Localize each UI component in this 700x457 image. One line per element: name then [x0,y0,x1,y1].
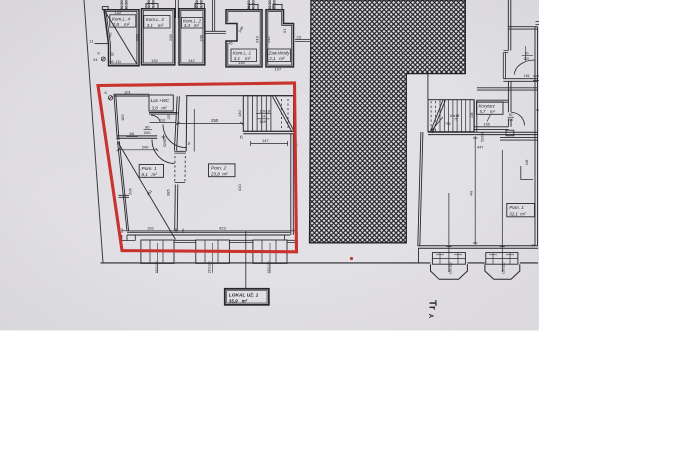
svg-text:90: 90 [509,113,513,117]
svg-text:80/200: 80/200 [195,0,199,9]
svg-text:182: 182 [120,114,125,121]
svg-text:2,8 m²: 2,8 m² [112,22,130,27]
svg-text:243: 243 [255,36,260,43]
svg-text:80/200: 80/200 [252,0,256,9]
svg-text:23,8 m²: 23,8 m² [210,172,228,177]
svg-text:750: 750 [445,122,451,126]
svg-text:238: 238 [168,34,173,41]
svg-text:Kom.L. 4: Kom.L. 4 [112,16,131,21]
svg-text:68: 68 [130,131,135,136]
svg-text:80/200: 80/200 [147,0,151,9]
svg-text:385: 385 [166,189,171,196]
svg-text:Pom. 2: Pom. 2 [211,165,227,171]
svg-text:147: 147 [262,138,269,143]
svg-text:80/200: 80/200 [120,0,124,9]
svg-text:5,7 m²: 5,7 m² [480,109,496,114]
svg-text:200: 200 [144,130,151,135]
svg-text:45: 45 [229,42,233,46]
svg-text:65: 65 [110,60,114,64]
svg-text:35,9 m²: 35,9 m² [229,299,248,304]
svg-text:Zaw.Wody: Zaw.Wody [268,50,291,55]
svg-text:169: 169 [260,120,266,124]
svg-text:150/120: 150/120 [502,262,506,274]
svg-text:24: 24 [261,115,265,119]
svg-text:200: 200 [508,118,514,122]
svg-text:80/200: 80/200 [200,0,204,9]
svg-text:132: 132 [151,58,158,63]
svg-text:3,4 m²: 3,4 m² [184,23,200,28]
svg-text:3,8 m²: 3,8 m² [152,105,167,110]
svg-text:192: 192 [147,226,154,231]
svg-text:240: 240 [199,34,204,41]
svg-text:25: 25 [240,135,244,139]
svg-text:K: K [105,90,108,95]
svg-text:2,1 m²: 2,1 m² [268,56,285,61]
svg-text:52/200: 52/200 [481,132,485,142]
svg-text:138: 138 [470,112,474,118]
svg-text:206: 206 [128,188,133,195]
svg-text:80/200: 80/200 [152,0,156,9]
svg-text:Korytarz: Korytarz [479,103,496,108]
svg-text:410: 410 [237,184,242,191]
svg-text:125: 125 [167,114,171,120]
svg-text:92/85: 92/85 [163,138,167,147]
svg-text:Kom.L. 1: Kom.L. 1 [233,50,252,55]
svg-text:142: 142 [115,10,122,15]
svg-text:80/200: 80/200 [125,0,129,9]
svg-text:90: 90 [525,52,529,56]
svg-text:110: 110 [159,117,166,122]
svg-text:Kom.L. 3: Kom.L. 3 [146,17,165,22]
svg-text:80/200: 80/200 [268,0,272,9]
svg-text:107: 107 [275,66,282,71]
svg-text:23: 23 [297,35,302,40]
svg-text:242: 242 [266,36,271,43]
svg-text:51: 51 [282,28,287,33]
svg-text:250: 250 [211,118,219,123]
svg-text:80/200: 80/200 [273,0,277,9]
svg-text:447: 447 [477,145,483,149]
svg-text:238: 238 [135,34,140,41]
svg-text:165: 165 [484,123,490,127]
svg-text:240: 240 [142,144,149,149]
svg-text:Tr: Tr [427,300,438,310]
svg-text:32,1 m²: 32,1 m² [509,211,526,216]
svg-text:94: 94 [532,244,536,248]
svg-text:3,1 m²: 3,1 m² [147,23,164,28]
svg-text:8,1 m²: 8,1 m² [142,172,158,177]
svg-text:80/200: 80/200 [247,0,251,9]
svg-text:200: 200 [524,57,530,61]
svg-text:150/120: 150/120 [449,262,453,274]
svg-text:50: 50 [187,141,191,145]
svg-text:161: 161 [524,74,530,78]
svg-text:Pom. 1: Pom. 1 [509,205,524,210]
svg-text:75: 75 [454,118,458,122]
svg-text:LOKAL UŻ. 1: LOKAL UŻ. 1 [229,292,259,299]
svg-text:24: 24 [93,57,98,62]
svg-text:62: 62 [111,52,115,56]
svg-text:111: 111 [116,60,121,64]
svg-text:423: 423 [219,226,226,231]
svg-text:140: 140 [237,110,242,117]
svg-text:A: A [427,314,433,319]
svg-text:443: 443 [470,190,474,196]
svg-text:Łaz.+WC: Łaz.+WC [151,98,170,103]
svg-text:142: 142 [188,58,195,63]
svg-text:146: 146 [525,159,529,165]
svg-text:90: 90 [145,124,150,129]
svg-text:134: 134 [238,60,245,65]
svg-text:101: 101 [124,90,131,95]
svg-text:10x18: 10x18 [260,110,270,114]
